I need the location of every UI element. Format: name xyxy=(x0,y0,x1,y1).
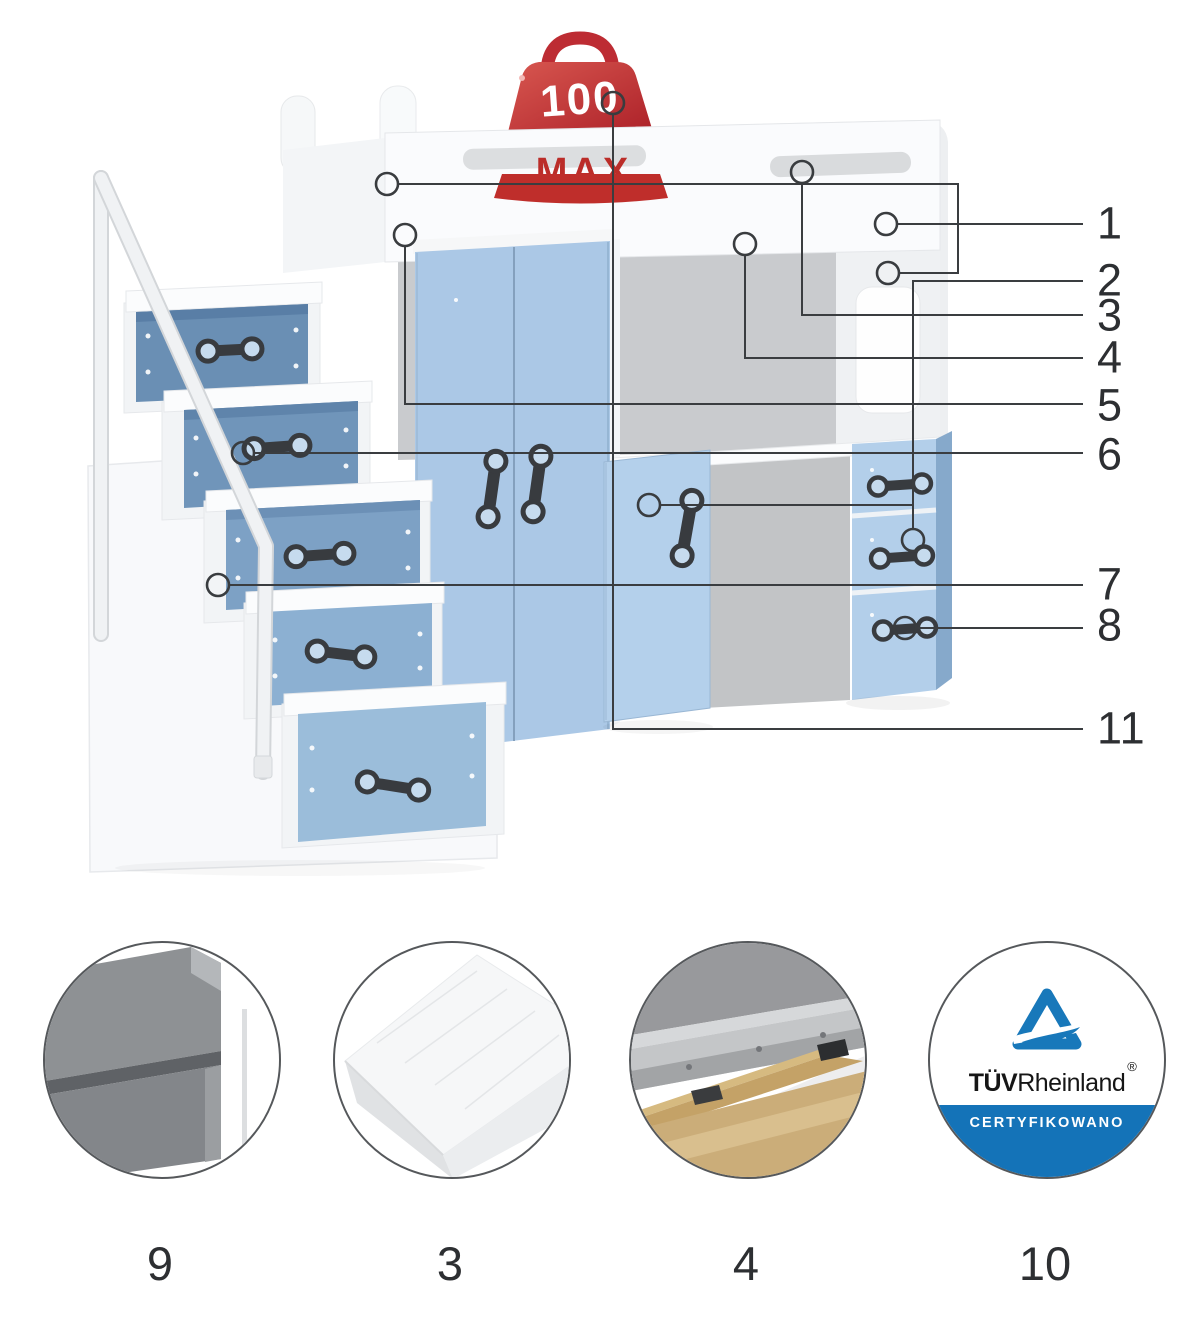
tuv-certified-caption: CERTYFIKOWANO xyxy=(930,1115,1164,1131)
callout-label-4: 4 xyxy=(1097,335,1123,380)
tuv-triangle-icon xyxy=(1010,987,1084,1055)
detail-label-3: 3 xyxy=(437,1240,463,1287)
callout-label-6: 6 xyxy=(1097,432,1123,477)
certificate-detail-circle: TÜVRheinland® CERTYFIKOWANO xyxy=(928,941,1166,1179)
tuv-certified-band: CERTYFIKOWANO xyxy=(930,1105,1164,1179)
callout-label-5: 5 xyxy=(1097,383,1123,428)
detail-label-4: 4 xyxy=(733,1240,759,1287)
detail-label-9: 9 xyxy=(147,1240,173,1287)
tuv-brand-rest: Rheinland xyxy=(1017,1069,1125,1097)
panel-edge-detail-image xyxy=(45,943,279,1177)
detail-label-10: 10 xyxy=(1019,1240,1071,1287)
tuv-brand-text: TÜVRheinland® xyxy=(930,1069,1164,1098)
panel-edge-detail-circle xyxy=(43,941,281,1179)
wardrobe xyxy=(413,229,612,753)
mattress-detail-image xyxy=(335,943,569,1177)
callout-label-11: 11 xyxy=(1097,706,1146,751)
desk-drawer-unit xyxy=(852,431,952,700)
slat-frame-detail-image xyxy=(631,943,865,1177)
badge-load-value: 100 xyxy=(539,72,622,126)
slat-frame-detail-circle xyxy=(629,941,867,1179)
callout-label-8: 8 xyxy=(1097,603,1123,648)
callout-label-1: 1 xyxy=(1097,201,1123,246)
product-diagram-page: MAX 100 xyxy=(0,0,1200,1338)
tuv-brand-bold: TÜV xyxy=(969,1069,1018,1097)
mattress-detail-circle xyxy=(333,941,571,1179)
registered-mark: ® xyxy=(1127,1059,1136,1074)
